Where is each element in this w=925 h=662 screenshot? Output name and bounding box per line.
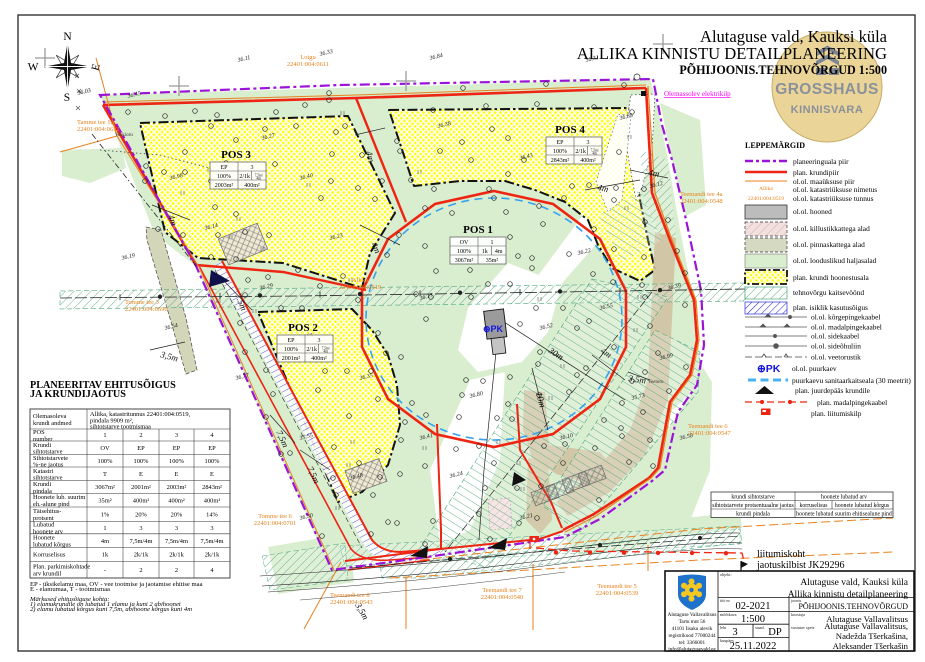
svg-text:1: 1 bbox=[103, 432, 106, 439]
svg-text:POS 3: POS 3 bbox=[221, 149, 251, 161]
svg-text:staad.: staad. bbox=[755, 625, 765, 630]
svg-text:3: 3 bbox=[587, 140, 590, 146]
svg-text:2001m²: 2001m² bbox=[131, 484, 151, 491]
svg-text:Veskioru: Veskioru bbox=[115, 133, 133, 138]
svg-text:ol.ol. hooned: ol.ol. hooned bbox=[793, 207, 832, 216]
svg-text:1: 1 bbox=[103, 525, 106, 532]
svg-text:400m²: 400m² bbox=[580, 158, 596, 164]
svg-text:POS 1: POS 1 bbox=[463, 224, 493, 236]
svg-text:ol.ol. katastriüksuse tunnus: ol.ol. katastriüksuse tunnus bbox=[793, 194, 874, 203]
svg-text:400m²: 400m² bbox=[168, 497, 185, 504]
svg-text:POS 4: POS 4 bbox=[555, 124, 585, 136]
svg-text:22401:004:0611: 22401:004:0611 bbox=[287, 61, 329, 68]
svg-text:eh.-alune pind: eh.-alune pind bbox=[33, 501, 70, 508]
svg-text:sihtotstarve tootmismaa: sihtotstarve tootmismaa bbox=[90, 424, 151, 431]
svg-text:ol.ol. pinnaskattega alad: ol.ol. pinnaskattega alad bbox=[793, 240, 865, 249]
svg-text:Nadežda Tšerkašina,: Nadežda Tšerkašina, bbox=[836, 631, 908, 641]
svg-text:2: 2 bbox=[139, 432, 142, 439]
svg-text:22401:004:0548: 22401:004:0548 bbox=[680, 198, 723, 205]
svg-text:20%: 20% bbox=[171, 512, 183, 519]
svg-text:2) elamu lubatud kõrgus kuni 7: 2) elamu lubatud kõrgus kuni 7,5m, abiho… bbox=[30, 606, 192, 613]
svg-text:2003m²: 2003m² bbox=[215, 183, 234, 189]
svg-text:EP: EP bbox=[287, 338, 295, 344]
svg-text:EP: EP bbox=[220, 165, 228, 171]
svg-text:7,5m/4m: 7,5m/4m bbox=[165, 538, 188, 545]
svg-text:plan. liitumiskilp: plan. liitumiskilp bbox=[811, 409, 862, 418]
svg-text:POS 2: POS 2 bbox=[288, 322, 318, 334]
svg-text:4m: 4m bbox=[592, 152, 597, 156]
svg-text:7,5m/4m: 7,5m/4m bbox=[201, 538, 224, 545]
svg-text:Loigu: Loigu bbox=[300, 54, 316, 61]
svg-text:100%: 100% bbox=[284, 347, 298, 353]
svg-text:2: 2 bbox=[139, 567, 142, 574]
svg-text:22401:004:0519: 22401:004:0519 bbox=[748, 196, 784, 202]
svg-text:töö nr: töö nr bbox=[720, 598, 730, 603]
svg-text:4m: 4m bbox=[648, 167, 661, 179]
svg-text:4m: 4m bbox=[256, 177, 261, 181]
svg-text:Teemandi tee 7: Teemandi tee 7 bbox=[482, 587, 522, 594]
svg-text:2843m²: 2843m² bbox=[202, 484, 222, 491]
svg-text:100%: 100% bbox=[169, 458, 185, 465]
svg-text:EP: EP bbox=[556, 140, 564, 146]
svg-text:02-2021: 02-2021 bbox=[736, 601, 771, 612]
svg-text:400m²: 400m² bbox=[133, 497, 150, 504]
svg-text:1%: 1% bbox=[101, 512, 110, 519]
svg-text:Alutaguse vald, Kauksi küla: Alutaguse vald, Kauksi küla bbox=[800, 578, 908, 588]
svg-text:400m²: 400m² bbox=[244, 183, 260, 189]
svg-text:tehnovõrgu kaitsevöönd: tehnovõrgu kaitsevöönd bbox=[793, 288, 864, 297]
svg-text:35m²: 35m² bbox=[98, 497, 111, 504]
svg-text:100%: 100% bbox=[205, 458, 221, 465]
svg-text:koostaja: koostaja bbox=[791, 612, 805, 617]
svg-text:1:500: 1:500 bbox=[741, 614, 765, 625]
svg-text:25.11.2022: 25.11.2022 bbox=[730, 641, 777, 652]
svg-text:2/1k: 2/1k bbox=[575, 149, 586, 155]
svg-text:leht: leht bbox=[720, 625, 727, 630]
svg-text:22401:004:0519: 22401:004:0519 bbox=[339, 284, 382, 291]
svg-text:EP: EP bbox=[208, 445, 216, 452]
svg-text:3067m²: 3067m² bbox=[455, 258, 474, 264]
svg-text:22401:004:0612: 22401:004:0612 bbox=[77, 126, 120, 133]
svg-text:krundi andmed: krundi andmed bbox=[33, 420, 72, 427]
svg-text:3067m²: 3067m² bbox=[95, 484, 115, 491]
svg-text:22401:004:0696: 22401:004:0696 bbox=[125, 306, 168, 313]
svg-text:7,5m/4m: 7,5m/4m bbox=[130, 538, 153, 545]
svg-text:Allika kinnistu detailplaneeri: Allika kinnistu detailplaneering bbox=[788, 590, 909, 600]
svg-text:Allika: Allika bbox=[352, 277, 368, 284]
svg-text:400m²: 400m² bbox=[311, 356, 327, 362]
svg-text:14%: 14% bbox=[206, 512, 218, 519]
svg-text:hoonete lubatud arv: hoonete lubatud arv bbox=[821, 495, 867, 501]
svg-text:400m²: 400m² bbox=[204, 497, 221, 504]
svg-text:100%: 100% bbox=[98, 458, 114, 465]
svg-text:22401:004:0543: 22401:004:0543 bbox=[330, 599, 373, 606]
svg-text:Veetoru: Veetoru bbox=[648, 380, 664, 385]
svg-text:2k/1k: 2k/1k bbox=[205, 552, 220, 559]
svg-text:2/1k: 2/1k bbox=[306, 347, 317, 353]
svg-text:1k: 1k bbox=[102, 552, 109, 559]
svg-text:ol.ol. kõrgepingekaabel: ol.ol. kõrgepingekaabel bbox=[811, 313, 880, 322]
svg-text:22401:004:0540: 22401:004:0540 bbox=[481, 594, 524, 601]
svg-text:E: E bbox=[175, 471, 179, 478]
svg-text:3: 3 bbox=[732, 627, 737, 638]
svg-text:liitumiskoht: liitumiskoht bbox=[757, 549, 806, 560]
svg-text:Teemandi tee 4a: Teemandi tee 4a bbox=[680, 191, 723, 198]
svg-text:100%: 100% bbox=[553, 149, 567, 155]
svg-text:PÕHIJOONIS.TEHNOVÕRGUD: PÕHIJOONIS.TEHNOVÕRGUD bbox=[798, 601, 908, 611]
svg-text:Olemassolev elektrikilp: Olemassolev elektrikilp bbox=[664, 90, 731, 98]
svg-text:korruselisus: korruselisus bbox=[799, 503, 828, 509]
svg-text:41101 Iisaku alevik: 41101 Iisaku alevik bbox=[672, 626, 713, 632]
svg-text:Teemandi tee 6: Teemandi tee 6 bbox=[688, 423, 728, 430]
svg-text:PÕHIJOONIS.TEHNOVÕRGUD 1:500: PÕHIJOONIS.TEHNOVÕRGUD 1:500 bbox=[679, 63, 887, 77]
svg-text:arv krundil: arv krundil bbox=[33, 571, 61, 578]
svg-text:hoonete lubatud suurim ehitise: hoonete lubatud suurim ehitisealune pind bbox=[796, 512, 892, 518]
svg-text:E: E bbox=[139, 471, 143, 478]
svg-text:objekt:: objekt: bbox=[720, 572, 732, 577]
svg-text:Aleksander Tšerkašin: Aleksander Tšerkašin bbox=[833, 641, 909, 651]
svg-text:mõõtkava: mõõtkava bbox=[720, 612, 737, 617]
svg-text:1k: 1k bbox=[482, 249, 488, 255]
svg-text:OV: OV bbox=[460, 240, 469, 246]
svg-text:3: 3 bbox=[175, 432, 178, 439]
svg-text:Korruselisus: Korruselisus bbox=[33, 552, 66, 559]
svg-text:Teemandi tee 5: Teemandi tee 5 bbox=[597, 583, 637, 590]
svg-text:krundi pindala: krundi pindala bbox=[736, 512, 770, 518]
svg-text:2: 2 bbox=[175, 567, 178, 574]
svg-text:ol.ol. madalpingekaabel: ol.ol. madalpingekaabel bbox=[811, 323, 882, 332]
svg-text:EP: EP bbox=[173, 445, 181, 452]
svg-text:puurkaevu sanitaarkaitseala (3: puurkaevu sanitaarkaitseala (30 meetrit) bbox=[792, 376, 911, 385]
svg-text:35m²: 35m² bbox=[486, 258, 499, 264]
svg-text:Alutaguse Vallavalitsus,: Alutaguse Vallavalitsus, bbox=[824, 621, 908, 631]
svg-text:lubatud kõrgus: lubatud kõrgus bbox=[33, 542, 72, 549]
svg-text:3: 3 bbox=[210, 525, 213, 532]
svg-text:plan. krundipiir: plan. krundipiir bbox=[793, 168, 840, 177]
svg-text:Alutaguse Vallavalitsus: Alutaguse Vallavalitsus bbox=[668, 612, 717, 618]
svg-text:3: 3 bbox=[139, 525, 142, 532]
svg-text:ol.ol. sidekaabel: ol.ol. sidekaabel bbox=[811, 332, 859, 341]
svg-text:JA KRUNDIJAOTUS: JA KRUNDIJAOTUS bbox=[30, 389, 126, 400]
svg-text:100%: 100% bbox=[134, 458, 150, 465]
svg-text:LEPPEMÄRGID: LEPPEMÄRGID bbox=[745, 141, 805, 150]
svg-text:KINNISVARA: KINNISVARA bbox=[791, 104, 864, 116]
svg-text:DP: DP bbox=[768, 627, 782, 638]
svg-text:22401:004:0701: 22401:004:0701 bbox=[254, 520, 297, 527]
svg-text:krundi sihtotstarve: krundi sihtotstarve bbox=[731, 495, 775, 501]
svg-text:tel: 3366001: tel: 3366001 bbox=[679, 640, 705, 646]
svg-text:2k/1k: 2k/1k bbox=[169, 552, 184, 559]
svg-text:plan. isiklik kasutusõigus: plan. isiklik kasutusõigus bbox=[793, 303, 868, 312]
svg-text:4m: 4m bbox=[323, 350, 328, 354]
svg-text:100%: 100% bbox=[457, 249, 471, 255]
svg-text:ol.ol. killustikkattega alad: ol.ol. killustikkattega alad bbox=[793, 224, 870, 233]
svg-text:plan. juurdepääs krundile: plan. juurdepääs krundile bbox=[795, 386, 871, 395]
svg-text:22401:004:0539: 22401:004:0539 bbox=[596, 590, 639, 597]
svg-text:-: - bbox=[104, 567, 106, 574]
svg-text:⊕PK: ⊕PK bbox=[757, 363, 781, 375]
svg-text:ol.ol. katastriüksuse nimetus: ol.ol. katastriüksuse nimetus bbox=[793, 185, 877, 194]
svg-text:2/1k: 2/1k bbox=[239, 174, 250, 180]
svg-text:ol.ol. puurkaev: ol.ol. puurkaev bbox=[792, 364, 837, 373]
svg-text:ALLIKA KINNISTU DETAILPLANEERI: ALLIKA KINNISTU DETAILPLANEERING bbox=[577, 44, 887, 63]
svg-text:ol.ol. veetorustik: ol.ol. veetorustik bbox=[811, 353, 861, 362]
svg-text:Teemandi tee 8: Teemandi tee 8 bbox=[330, 592, 370, 599]
svg-text:GROSSHAUS: GROSSHAUS bbox=[775, 81, 879, 98]
svg-text:3: 3 bbox=[175, 525, 178, 532]
svg-text:⊕PK: ⊕PK bbox=[483, 324, 504, 334]
svg-text:plan. madalpingekaabel: plan. madalpingekaabel bbox=[817, 398, 887, 407]
svg-text:jaotuskilbist JK29296: jaotuskilbist JK29296 bbox=[756, 560, 845, 571]
svg-text:Tomme tee 3: Tomme tee 3 bbox=[125, 299, 159, 306]
svg-text:registrikood 77000244: registrikood 77000244 bbox=[668, 633, 716, 639]
svg-text:plan. krundi hoonestusala: plan. krundi hoonestusala bbox=[793, 273, 869, 282]
svg-text:Tomme tee 6: Tomme tee 6 bbox=[258, 513, 293, 520]
svg-text:100%: 100% bbox=[217, 174, 231, 180]
svg-text:Tamme tee 12: Tamme tee 12 bbox=[77, 119, 114, 126]
svg-text:22401:004:0547: 22401:004:0547 bbox=[688, 430, 731, 437]
svg-text:2003m²: 2003m² bbox=[167, 484, 187, 491]
svg-text:ol.ol. looduslikud haljasalad: ol.ol. looduslikud haljasalad bbox=[793, 256, 877, 265]
svg-text:Allika: Allika bbox=[759, 186, 773, 192]
svg-text:E: E bbox=[210, 471, 214, 478]
svg-text:planeeringuala piir: planeeringuala piir bbox=[793, 157, 849, 166]
svg-text:N: N bbox=[63, 31, 72, 43]
svg-text:OV: OV bbox=[100, 445, 110, 452]
svg-text:Tartu mnt 56: Tartu mnt 56 bbox=[679, 619, 706, 625]
svg-text:T: T bbox=[103, 471, 107, 478]
svg-text:info@alutagusevald.ee: info@alutagusevald.ee bbox=[668, 646, 716, 653]
svg-text:ol.ol. sideõhuliin: ol.ol. sideõhuliin bbox=[811, 342, 861, 351]
svg-text:2k/1k: 2k/1k bbox=[134, 552, 149, 559]
svg-text:vastutav spets: vastutav spets bbox=[791, 625, 815, 630]
svg-text:W: W bbox=[28, 62, 39, 74]
svg-text:E - elamumaa, T - tootmismaa: E - elamumaa, T - tootmismaa bbox=[30, 586, 110, 593]
svg-text:1: 1 bbox=[491, 240, 494, 246]
svg-text:EP: EP bbox=[137, 445, 145, 452]
svg-text:2001m²: 2001m² bbox=[282, 356, 301, 362]
svg-text:2843m²: 2843m² bbox=[551, 158, 570, 164]
svg-text:3: 3 bbox=[318, 338, 321, 344]
svg-text:hoonete lubatud kõrgus: hoonete lubatud kõrgus bbox=[835, 503, 890, 509]
svg-text:4m: 4m bbox=[495, 249, 503, 255]
svg-text:sihtotstarvete protsentuaalne: sihtotstarvete protsentuaalne jaotus bbox=[712, 503, 794, 509]
svg-text:S: S bbox=[64, 92, 70, 104]
svg-text:4m: 4m bbox=[101, 538, 109, 545]
svg-text:3: 3 bbox=[251, 165, 254, 171]
svg-text:20%: 20% bbox=[135, 512, 147, 519]
